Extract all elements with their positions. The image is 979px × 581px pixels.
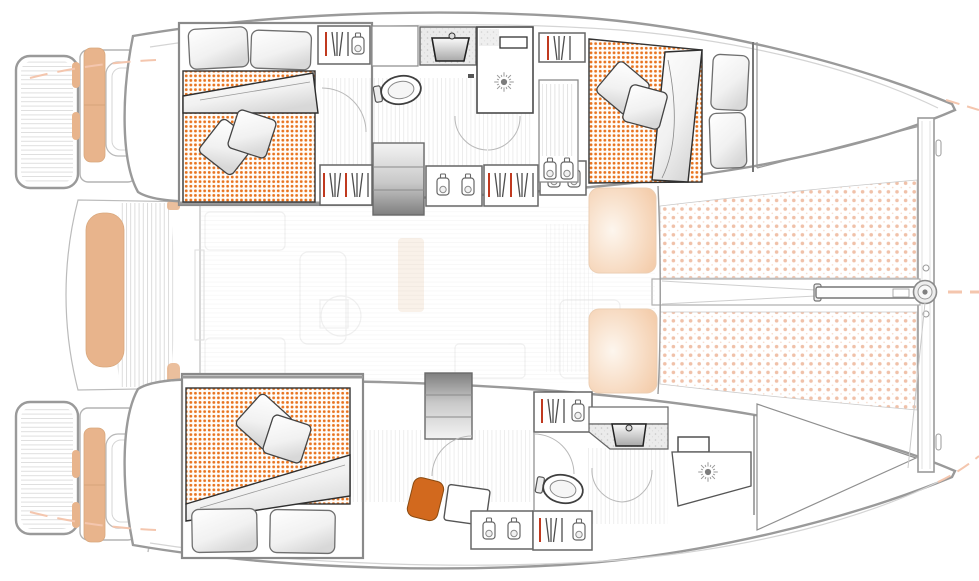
beam-cleat <box>936 140 941 156</box>
door-handle <box>468 74 474 78</box>
coachroof-window <box>589 309 657 393</box>
faucet <box>626 425 632 431</box>
step-cushion <box>72 450 80 478</box>
step-cushion <box>72 62 80 88</box>
hull-floor-planking <box>478 113 533 168</box>
trampoline-lower <box>660 312 917 410</box>
furler-core <box>922 289 927 294</box>
coachroof-window <box>589 188 656 273</box>
shower-ledge <box>479 29 499 46</box>
bowsprit-tag <box>893 289 909 297</box>
companionway-steps <box>373 143 424 215</box>
shower-shelf <box>500 37 527 48</box>
shower-shelf <box>678 437 709 452</box>
hull-floor-planking <box>588 448 668 524</box>
swim-platform-planking <box>21 61 73 183</box>
catamaran-floor-plan <box>0 0 979 581</box>
sink-basin <box>432 38 469 61</box>
floor-plan-canvas <box>0 0 979 581</box>
beam-fitting <box>923 265 929 271</box>
louver-slats <box>542 84 575 156</box>
aft-cockpit <box>66 200 204 393</box>
companionway-steps <box>425 373 472 439</box>
step-cushion <box>72 112 80 140</box>
bathroom-cabinet <box>372 26 418 66</box>
faucet <box>449 33 455 39</box>
beam-cleat <box>936 434 941 450</box>
bed-pillow <box>711 54 750 111</box>
step-cushion <box>72 502 80 528</box>
bed-pillow <box>709 112 747 168</box>
vanity-cabinet <box>589 407 668 424</box>
shelf-unit <box>471 511 533 549</box>
bed-pillow <box>270 509 336 553</box>
swim-platform-planking <box>21 407 73 529</box>
saloon-side-planking <box>545 224 593 372</box>
saloon-ghost <box>200 186 660 394</box>
bed-pillow <box>192 508 258 552</box>
saloon-counter-ghost <box>398 238 424 312</box>
starboard-forward-cabin <box>539 33 753 183</box>
bed-pillow <box>250 30 311 70</box>
trampoline-upper <box>660 180 917 278</box>
port-aft-cabin <box>182 374 363 558</box>
cockpit-bench <box>86 213 124 367</box>
bed-pillow <box>188 27 249 70</box>
